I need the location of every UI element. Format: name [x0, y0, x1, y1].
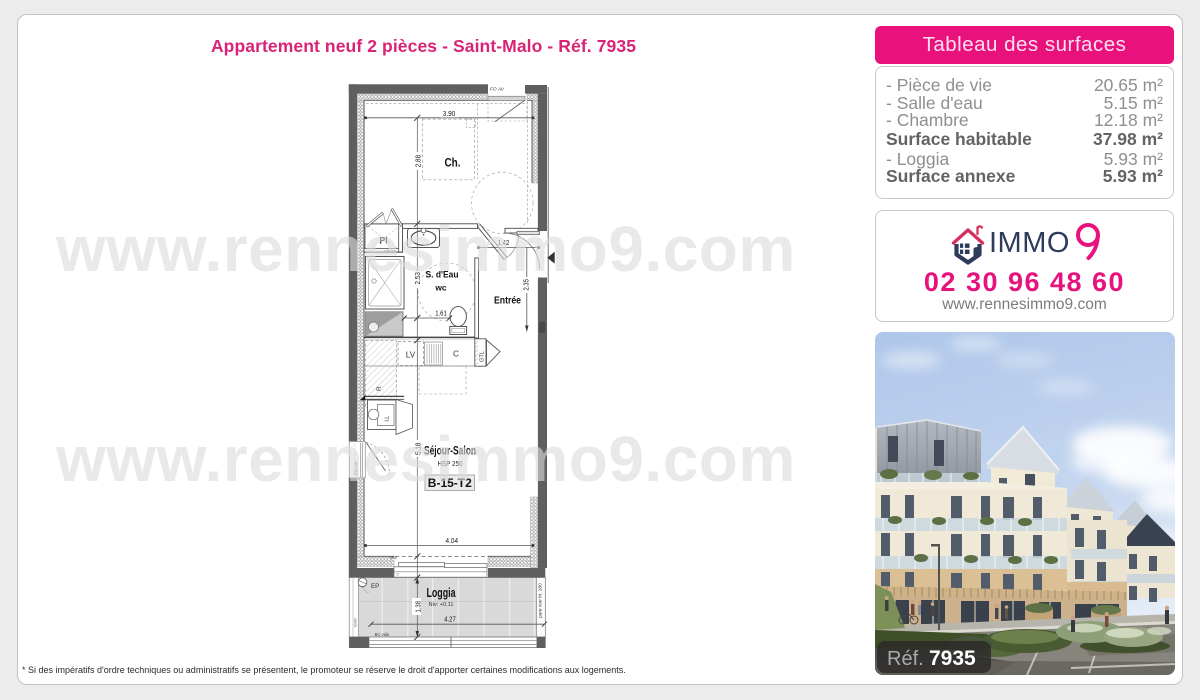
svg-text:1.38: 1.38 [415, 601, 422, 613]
svg-text:Ch.: Ch. [445, 158, 461, 170]
svg-text:60x60: 60x60 [353, 618, 357, 627]
svg-text:3.90: 3.90 [443, 109, 456, 118]
svg-text:GTL: GTL [480, 351, 486, 362]
svg-text:LL: LL [385, 416, 391, 422]
svg-text:BC vide: BC vide [375, 632, 390, 637]
svg-text:Réf.: Réf. [887, 648, 924, 670]
svg-text:C: C [397, 572, 400, 576]
svg-text:1.61: 1.61 [435, 311, 447, 318]
svg-text:LV: LV [406, 351, 416, 360]
svg-text:IMMO: IMMO [989, 227, 1070, 259]
svg-text:VRE: VRE [390, 556, 398, 560]
svg-text:FO AV: FO AV [490, 87, 505, 93]
svg-text:7935: 7935 [929, 647, 976, 670]
svg-text:R: R [376, 386, 383, 391]
svg-text:4.27: 4.27 [444, 617, 456, 624]
svg-text:EP: EP [371, 583, 379, 590]
svg-text:4.04: 4.04 [446, 536, 459, 545]
svg-text:Niv: +0.11: Niv: +0.11 [429, 602, 454, 608]
svg-text:C: C [453, 350, 459, 359]
svg-text:2.88: 2.88 [413, 155, 422, 168]
svg-text:Entrée: Entrée [494, 295, 521, 307]
svg-text:pare vue ht. 180: pare vue ht. 180 [538, 583, 544, 619]
svg-text:Loggia: Loggia [427, 586, 457, 600]
